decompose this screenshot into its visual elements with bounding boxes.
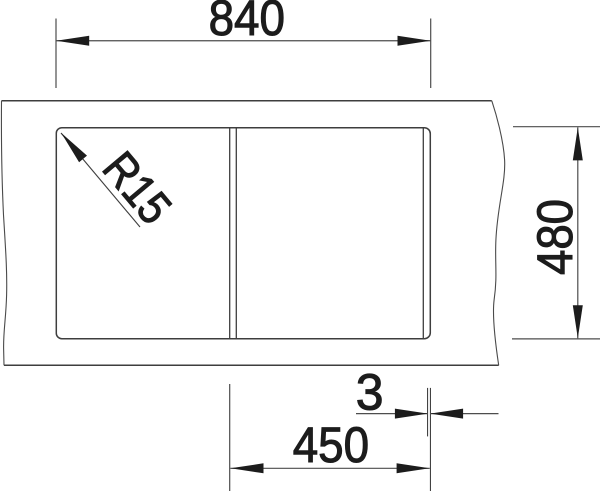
svg-text:840: 840 <box>209 0 285 46</box>
svg-text:450: 450 <box>293 417 369 473</box>
svg-text:R15: R15 <box>93 141 182 233</box>
svg-text:480: 480 <box>527 199 583 275</box>
svg-text:3: 3 <box>356 363 384 420</box>
